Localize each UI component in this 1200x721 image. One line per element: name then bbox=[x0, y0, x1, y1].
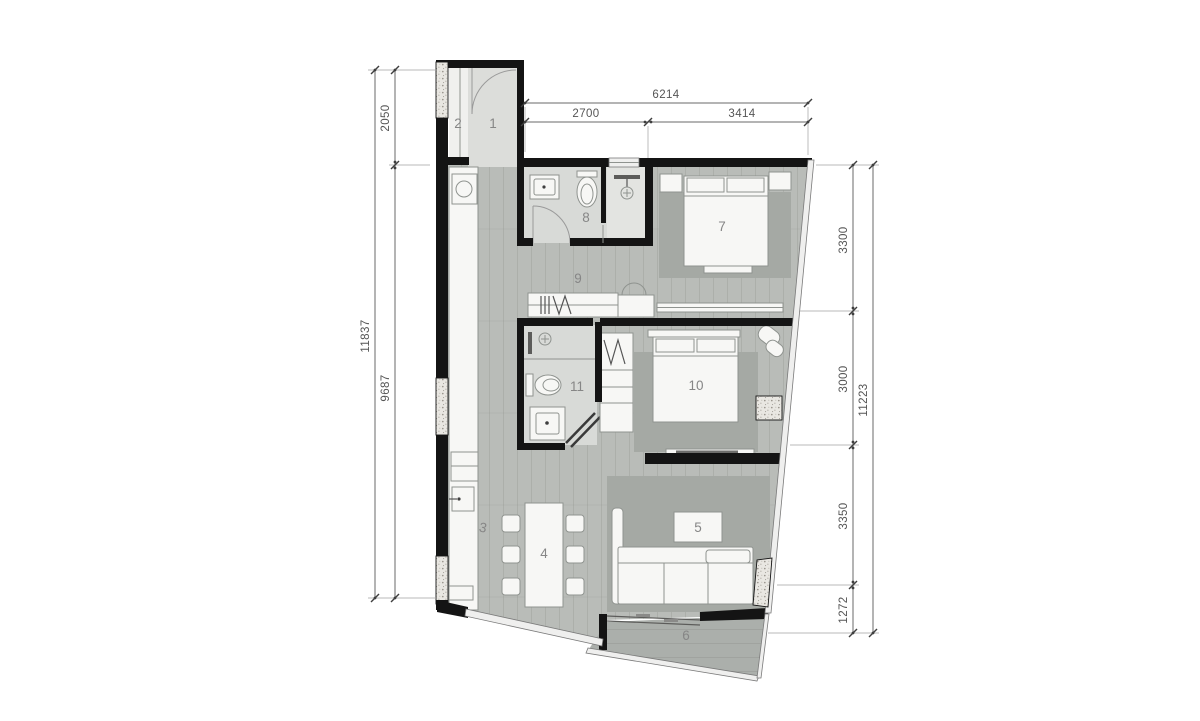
room-label-4: 4 bbox=[540, 546, 548, 561]
dim-left-outer-total: 11837 bbox=[360, 319, 372, 352]
room-label-9: 9 bbox=[574, 271, 582, 286]
closet-floor bbox=[449, 67, 468, 157]
room-label-2: 2 bbox=[454, 116, 462, 131]
corridor-basin-unit bbox=[618, 295, 654, 317]
sofa-chaise bbox=[706, 550, 750, 563]
dining-chair bbox=[566, 578, 584, 595]
dim-top-segment-1: 2700 bbox=[572, 108, 599, 120]
dim-left-main-segment: 9687 bbox=[380, 374, 392, 401]
nightstand bbox=[660, 174, 682, 192]
pillow bbox=[727, 178, 764, 192]
dim-right-segment-2: 3000 bbox=[838, 365, 850, 392]
column-hatch bbox=[756, 396, 782, 420]
dim-right-segment-1: 3300 bbox=[838, 226, 850, 253]
toilet8-cistern bbox=[577, 171, 597, 177]
column-hatch bbox=[436, 556, 448, 604]
column-hatch bbox=[436, 62, 448, 118]
dining-chair bbox=[502, 515, 520, 532]
door-handle bbox=[664, 619, 678, 622]
room-label-11: 11 bbox=[570, 379, 584, 394]
room-label-6: 6 bbox=[682, 628, 690, 643]
toilet8-bowl bbox=[577, 177, 597, 207]
room-label-8: 8 bbox=[582, 210, 590, 225]
room-label-1: 1 bbox=[489, 116, 497, 131]
room-label-5: 5 bbox=[694, 520, 702, 535]
dim-right-segment-4: 1272 bbox=[838, 596, 850, 623]
floor-plan-drawing: 6214 2700 3414 11837 2050 9687 bbox=[0, 0, 1200, 721]
headboard10 bbox=[648, 330, 740, 337]
dim-top-segment-2: 3414 bbox=[728, 108, 755, 120]
toilet11-bowl bbox=[535, 375, 561, 395]
pillow bbox=[656, 339, 694, 352]
dimensions-left: 11837 2050 9687 bbox=[360, 66, 436, 602]
kitchen-furniture bbox=[449, 167, 478, 610]
dim-right-segment-3: 3350 bbox=[838, 502, 850, 529]
pillow bbox=[687, 178, 724, 192]
kitchen-counter bbox=[449, 167, 478, 610]
kitchen-cabinet bbox=[449, 586, 473, 600]
column-hatch bbox=[436, 378, 448, 435]
toilet11-cistern bbox=[526, 374, 533, 396]
wardrobe10 bbox=[600, 333, 633, 432]
dining-chair bbox=[502, 578, 520, 595]
room-label-7: 7 bbox=[718, 219, 726, 234]
floor-plan-page: 6214 2700 3414 11837 2050 9687 bbox=[0, 0, 1200, 721]
nightstand bbox=[769, 172, 791, 190]
bed-bench bbox=[704, 266, 752, 273]
dining-chair bbox=[566, 515, 584, 532]
dim-top-total: 6214 bbox=[652, 89, 679, 101]
room-label-10: 10 bbox=[688, 378, 703, 393]
shower11-rail bbox=[528, 332, 532, 354]
dimensions-top: 6214 2700 3414 bbox=[521, 89, 812, 158]
dining-chair bbox=[566, 546, 584, 563]
shower8-rail bbox=[614, 175, 640, 179]
door-handle bbox=[636, 614, 650, 617]
pillow bbox=[697, 339, 735, 352]
dining-chair bbox=[502, 546, 520, 563]
dim-left-top-segment: 2050 bbox=[380, 104, 392, 131]
dim-right-outer-total: 11223 bbox=[858, 383, 870, 416]
